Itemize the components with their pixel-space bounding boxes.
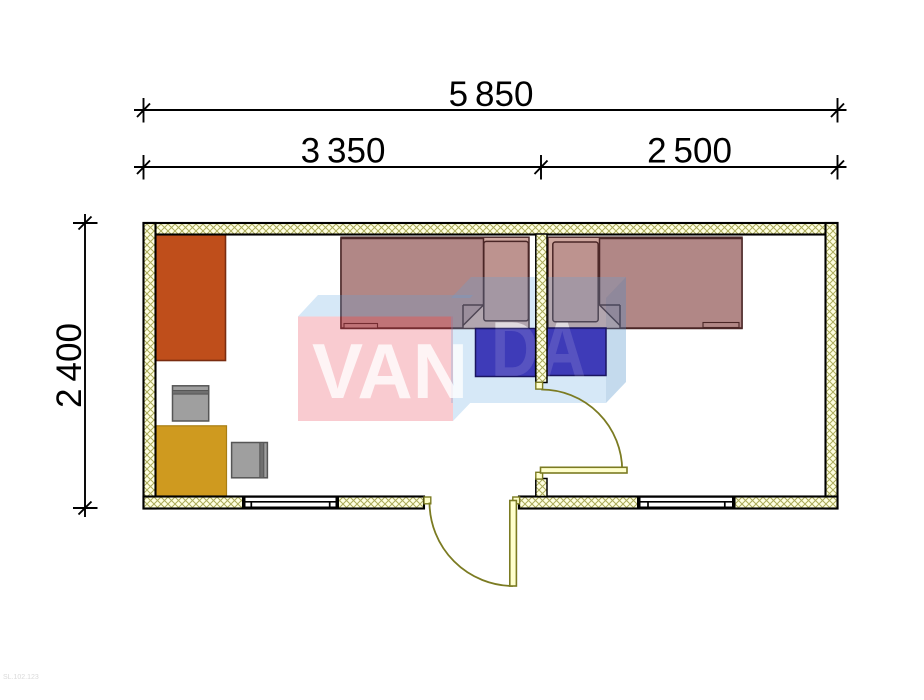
- svg-text:3 350: 3 350: [301, 132, 386, 171]
- svg-text:2 500: 2 500: [647, 132, 732, 171]
- svg-text:5 850: 5 850: [449, 75, 534, 114]
- svg-text:2 400: 2 400: [50, 323, 89, 408]
- svg-text:SL.102.123: SL.102.123: [3, 674, 39, 681]
- svg-text:VAN: VAN: [312, 327, 468, 415]
